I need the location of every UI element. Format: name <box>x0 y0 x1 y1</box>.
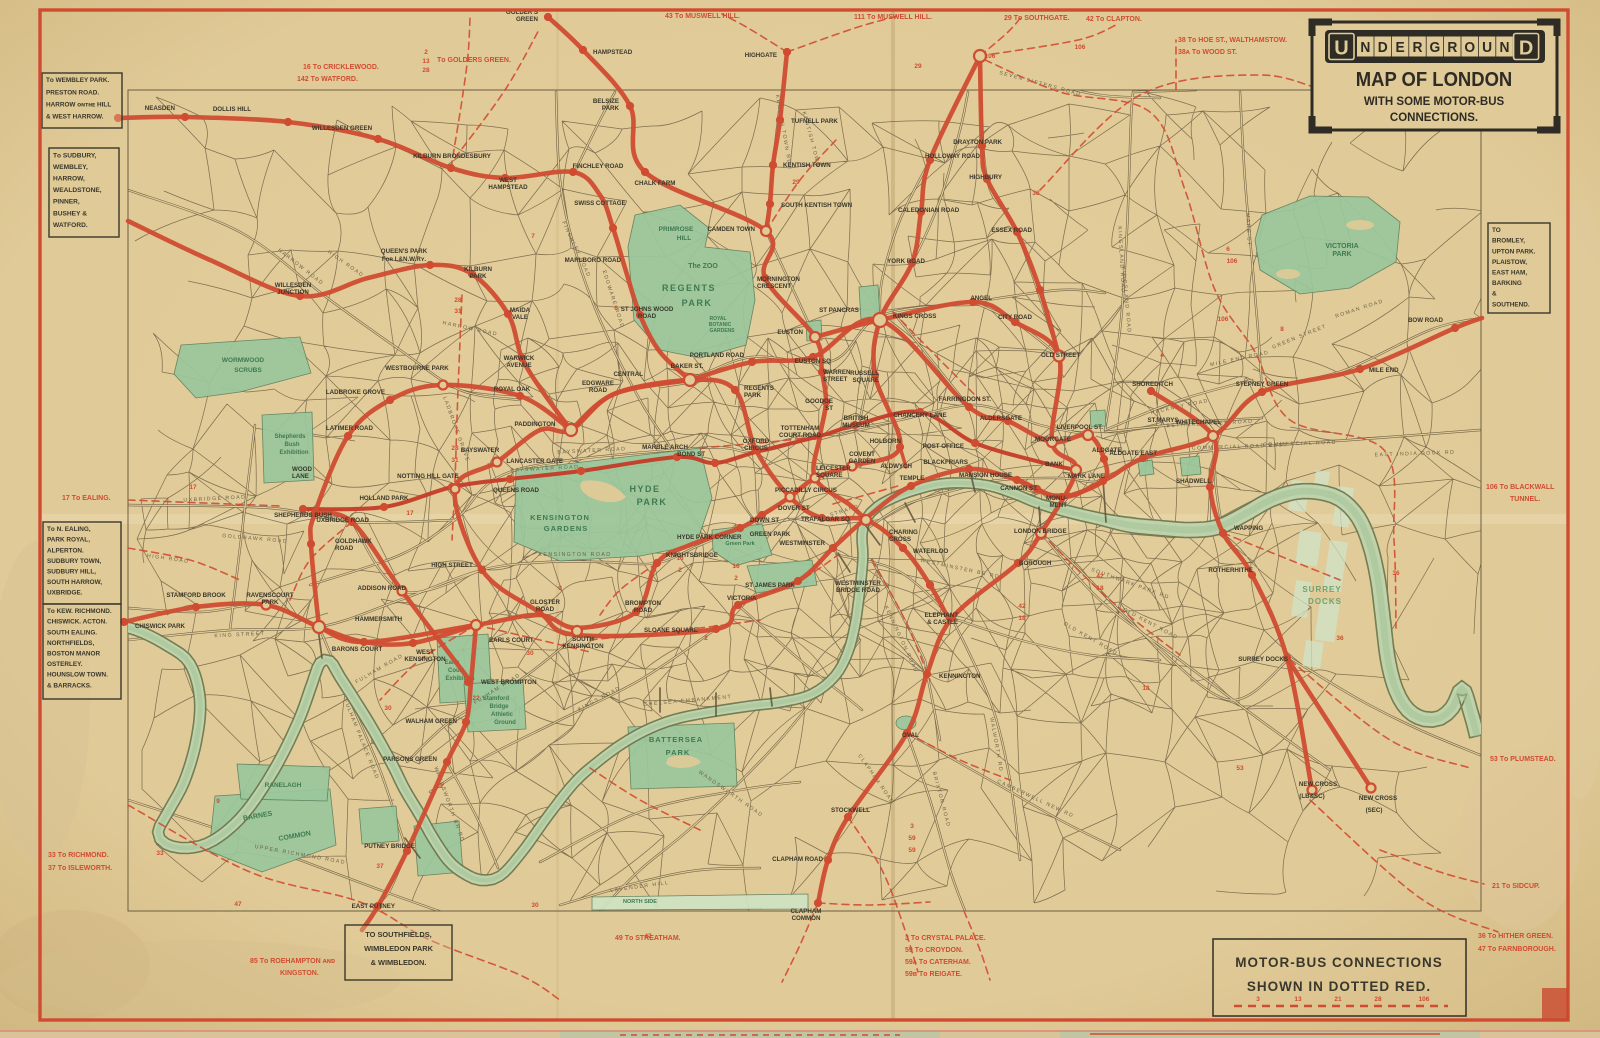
svg-text:106: 106 <box>1075 44 1086 51</box>
svg-text:Green Park: Green Park <box>725 541 755 547</box>
svg-text:BRIDGE ROAD: BRIDGE ROAD <box>836 587 881 594</box>
svg-text:Tᴏ N. EALING,: Tᴏ N. EALING, <box>47 526 91 533</box>
svg-text:WORMWOOD: WORMWOOD <box>222 357 265 364</box>
svg-text:SWISS COTTAGE: SWISS COTTAGE <box>574 200 625 207</box>
svg-text:LIVERPOOL ST.: LIVERPOOL ST. <box>1057 424 1104 431</box>
svg-text:CHALK FARM: CHALK FARM <box>635 180 676 187</box>
svg-text:106 Tᴏ BLACKWALL: 106 Tᴏ BLACKWALL <box>1486 484 1555 491</box>
svg-text:PARK: PARK <box>666 748 691 757</box>
svg-text:TEMPLE: TEMPLE <box>899 475 924 482</box>
svg-text:EAST HAM,: EAST HAM, <box>1492 270 1527 277</box>
svg-text:ST PANCRAS: ST PANCRAS <box>819 307 859 314</box>
svg-text:NORTHFIELDS,: NORTHFIELDS, <box>47 640 94 647</box>
svg-text:28: 28 <box>454 297 462 304</box>
svg-text:BUSHEY &: BUSHEY & <box>53 210 87 217</box>
svg-text:6: 6 <box>1226 246 1230 253</box>
svg-text:29: 29 <box>914 63 922 70</box>
svg-text:DOVER ST: DOVER ST <box>778 505 810 512</box>
svg-text:WEMBLEY,: WEMBLEY, <box>53 164 88 171</box>
svg-text:111 Tᴏ MUSWELL HILL.: 111 Tᴏ MUSWELL HILL. <box>854 14 932 21</box>
svg-text:Tᴏ GOLDERS GREEN.: Tᴏ GOLDERS GREEN. <box>437 57 511 64</box>
svg-text:21: 21 <box>1334 996 1342 1003</box>
svg-text:O: O <box>1464 40 1475 57</box>
svg-text:CROSS: CROSS <box>889 536 911 543</box>
svg-text:WALHAM GREEN: WALHAM GREEN <box>405 718 457 725</box>
svg-text:Tᴏ WEMBLEY PARK.: Tᴏ WEMBLEY PARK. <box>46 77 110 84</box>
svg-text:CIRCUS: CIRCUS <box>744 445 768 452</box>
svg-text:CLAPHAM ROAD: CLAPHAM ROAD <box>772 856 823 863</box>
svg-text:HARROW ᴏɴᴛʜᴇ HILL: HARROW ᴏɴᴛʜᴇ HILL <box>46 102 111 109</box>
svg-text:D: D <box>1519 38 1533 60</box>
svg-text:ROAD: ROAD <box>335 545 354 552</box>
svg-text:KENTISH TOWN: KENTISH TOWN <box>783 162 831 169</box>
svg-text:(LB&SC): (LB&SC) <box>1299 793 1324 800</box>
svg-text:33 Tᴏ RICHMOND.: 33 Tᴏ RICHMOND. <box>48 852 109 859</box>
svg-text:E: E <box>1395 40 1405 57</box>
svg-text:FINCHLEY ROAD: FINCHLEY ROAD <box>573 163 624 170</box>
svg-text:EUSTON: EUSTON <box>777 329 803 336</box>
svg-text:HOUNSLOW TOWN.: HOUNSLOW TOWN. <box>47 672 108 679</box>
svg-text:18: 18 <box>1096 585 1104 592</box>
svg-text:RANELAGH: RANELAGH <box>265 782 302 789</box>
svg-text:42: 42 <box>1096 573 1104 580</box>
svg-text:2: 2 <box>734 575 738 582</box>
svg-text:47: 47 <box>234 901 242 908</box>
svg-text:36 Tᴏ HITHER GREEN.: 36 Tᴏ HITHER GREEN. <box>1478 933 1553 940</box>
svg-text:HARROW,: HARROW, <box>53 175 85 182</box>
svg-text:D: D <box>1378 40 1388 57</box>
svg-text:U: U <box>1334 38 1348 60</box>
svg-text:36: 36 <box>1392 570 1400 577</box>
svg-text:18: 18 <box>1018 615 1026 622</box>
svg-text:OLD STREET: OLD STREET <box>1041 352 1080 359</box>
svg-text:PUTNEY BRIDGE: PUTNEY BRIDGE <box>364 843 415 850</box>
svg-text:UXBRIDGE ROAD: UXBRIDGE ROAD <box>316 517 369 524</box>
svg-text:N: N <box>1500 40 1510 57</box>
svg-text:FARRINGDON ST.: FARRINGDON ST. <box>939 396 992 403</box>
svg-text:ESSEX ROAD: ESSEX ROAD <box>991 227 1032 234</box>
svg-text:KNIGHTSBRIDGE: KNIGHTSBRIDGE <box>666 552 718 559</box>
svg-text:CENTRAL: CENTRAL <box>613 371 643 378</box>
svg-text:UXBRIDGE.: UXBRIDGE. <box>47 590 83 597</box>
svg-text:MARK LANE: MARK LANE <box>1068 473 1105 480</box>
svg-text:33: 33 <box>156 850 164 857</box>
svg-text:AVENUE: AVENUE <box>506 362 531 369</box>
svg-text:QUEENS ROAD: QUEENS ROAD <box>493 487 540 494</box>
svg-text:TO SOUTHFIELDS,: TO SOUTHFIELDS, <box>365 930 431 939</box>
svg-text:ROAD: ROAD <box>536 606 555 613</box>
svg-text:MANSION HOUSE: MANSION HOUSE <box>959 472 1012 479</box>
svg-text:Bridge: Bridge <box>489 704 509 710</box>
svg-text:DOWN ST: DOWN ST <box>750 517 779 524</box>
svg-text:VICTORIA: VICTORIA <box>1325 243 1358 250</box>
svg-text:16 Tᴏ CRICKLEWOOD.: 16 Tᴏ CRICKLEWOOD. <box>303 64 379 71</box>
svg-text:TRAFALGAR SQ: TRAFALGAR SQ <box>801 516 850 523</box>
svg-text:HOLBORN: HOLBORN <box>870 438 902 445</box>
svg-text:31: 31 <box>454 308 462 315</box>
svg-text:59ᴀ Tᴏ CATERHAM.: 59ᴀ Tᴏ CATERHAM. <box>905 959 971 966</box>
svg-text:37: 37 <box>376 863 384 870</box>
svg-text:Athletic: Athletic <box>491 712 514 718</box>
svg-text:COURT ROAD: COURT ROAD <box>779 432 821 439</box>
svg-text:HIGHGATE: HIGHGATE <box>745 52 777 59</box>
svg-text:GARDENS: GARDENS <box>709 328 735 334</box>
svg-text:HAMPSTEAD: HAMPSTEAD <box>488 184 528 191</box>
svg-text:SOUTH KENTISH TOWN: SOUTH KENTISH TOWN <box>781 202 853 209</box>
svg-text:KENSINGTON: KENSINGTON <box>562 643 604 650</box>
svg-text:59 Tᴏ CROYDON.: 59 Tᴏ CROYDON. <box>905 947 963 954</box>
svg-text:13: 13 <box>422 58 430 65</box>
svg-text:WITH SOME MOTOR-BUS: WITH SOME MOTOR-BUS <box>1364 96 1505 108</box>
svg-text:NEW CROSS: NEW CROSS <box>1299 781 1337 788</box>
svg-text:KENSINGTON ROAD: KENSINGTON ROAD <box>538 552 611 558</box>
svg-text:ROTHERHITHE: ROTHERHITHE <box>1208 567 1253 574</box>
svg-text:Ground: Ground <box>494 720 516 726</box>
svg-text:38ᴀ Tᴏ WOOD ST.: 38ᴀ Tᴏ WOOD ST. <box>1178 49 1237 56</box>
svg-text:Bush: Bush <box>285 442 300 448</box>
svg-text:WEALDSTONE,: WEALDSTONE, <box>53 187 102 194</box>
svg-text:& WEST HARROW.: & WEST HARROW. <box>46 114 104 121</box>
svg-text:LONDON BRIDGE: LONDON BRIDGE <box>1014 528 1067 535</box>
svg-text:SHOREDITCH: SHOREDITCH <box>1132 381 1173 388</box>
svg-text:& BARRACKS.: & BARRACKS. <box>47 682 92 689</box>
svg-text:SOUTH HARROW,: SOUTH HARROW, <box>47 579 102 586</box>
svg-text:BATTERSEA: BATTERSEA <box>649 735 703 744</box>
svg-text:SQUARE: SQUARE <box>816 472 842 479</box>
svg-text:DOCKS: DOCKS <box>1308 597 1342 606</box>
svg-text:CAMDEN TOWN: CAMDEN TOWN <box>707 226 755 233</box>
svg-text:SUDBURY TOWN,: SUDBURY TOWN, <box>47 558 101 565</box>
svg-text:LATIMER ROAD: LATIMER ROAD <box>326 425 374 432</box>
svg-text:PARK: PARK <box>682 298 713 308</box>
svg-text:Tᴏ KEW. RICHMOND.: Tᴏ KEW. RICHMOND. <box>47 608 112 615</box>
svg-text:PICCADILLY CIRCUS: PICCADILLY CIRCUS <box>775 487 837 494</box>
svg-text:CONNECTIONS.: CONNECTIONS. <box>1390 112 1478 124</box>
svg-text:HILL: HILL <box>677 235 691 242</box>
svg-text:BLACKFRIARS: BLACKFRIARS <box>923 459 968 466</box>
svg-text:53: 53 <box>1236 765 1244 772</box>
svg-text:STOCKWELL: STOCKWELL <box>831 807 870 814</box>
svg-text:BARKING: BARKING <box>1492 280 1522 287</box>
svg-text:SOUTH EALING.: SOUTH EALING. <box>47 629 97 636</box>
svg-text:HYDE PARK CORNER: HYDE PARK CORNER <box>677 534 742 541</box>
svg-text:The ZOO: The ZOO <box>688 263 718 270</box>
svg-text:OVAL: OVAL <box>902 732 919 739</box>
svg-text:13: 13 <box>1294 996 1302 1003</box>
svg-text:ALDERSGATE: ALDERSGATE <box>980 415 1022 422</box>
svg-text:38 Tᴏ HOE ST., WALTHAMSTOW.: 38 Tᴏ HOE ST., WALTHAMSTOW. <box>1178 37 1287 44</box>
svg-text:30: 30 <box>384 705 392 712</box>
svg-text:LANE: LANE <box>292 473 309 480</box>
svg-text:WHITECHAPEL: WHITECHAPEL <box>1176 419 1222 426</box>
svg-text:MUSEUM: MUSEUM <box>842 422 870 429</box>
svg-text:POST OFFICE: POST OFFICE <box>923 443 964 450</box>
svg-text:STAMFORD BROOK: STAMFORD BROOK <box>166 592 226 599</box>
svg-text:SUDBURY HILL,: SUDBURY HILL, <box>47 569 96 576</box>
svg-text:BANK: BANK <box>1045 461 1063 468</box>
svg-text:NEW CROSS: NEW CROSS <box>1359 795 1397 802</box>
svg-text:CRESCENT: CRESCENT <box>757 283 791 290</box>
svg-text:CANNON ST.: CANNON ST. <box>1000 485 1038 492</box>
svg-text:TO: TO <box>1492 227 1501 234</box>
svg-text:DOLLIS HILL: DOLLIS HILL <box>213 106 251 113</box>
svg-text:BOND ST: BOND ST <box>677 451 705 458</box>
svg-text:ROYAL OAK: ROYAL OAK <box>494 386 531 393</box>
svg-text:R: R <box>1447 40 1458 57</box>
svg-text:31: 31 <box>451 457 459 464</box>
svg-text:KILBURN BRONDESBURY: KILBURN BRONDESBURY <box>413 153 492 160</box>
svg-text:ALDWYCH: ALDWYCH <box>880 463 912 470</box>
svg-text:6: 6 <box>614 305 618 312</box>
svg-text:MARLBORO ROAD: MARLBORO ROAD <box>565 257 622 264</box>
svg-text:G: G <box>1430 40 1441 57</box>
svg-text:MILE END: MILE END <box>1369 367 1399 374</box>
svg-text:PARK: PARK <box>602 105 620 112</box>
svg-text:CITY ROAD: CITY ROAD <box>998 314 1032 321</box>
svg-text:WILLESDEN GREEN: WILLESDEN GREEN <box>312 125 373 132</box>
svg-text:ROAD: ROAD <box>589 387 608 394</box>
svg-text:BOW ROAD: BOW ROAD <box>1408 317 1444 324</box>
svg-text:PARK: PARK <box>1332 251 1351 258</box>
svg-text:106: 106 <box>1227 258 1238 265</box>
svg-text:ALPERTON.: ALPERTON. <box>47 547 84 554</box>
svg-text:MARBLE ARCH: MARBLE ARCH <box>642 444 688 451</box>
svg-text:N: N <box>1360 40 1370 57</box>
svg-text:HIGHBURY: HIGHBURY <box>969 174 1003 181</box>
svg-text:WIMBLEDON PARK: WIMBLEDON PARK <box>364 944 433 953</box>
svg-text:REGENTS: REGENTS <box>662 283 716 293</box>
svg-text:8: 8 <box>1280 326 1284 333</box>
svg-text:WEST BROMPTON: WEST BROMPTON <box>481 679 537 686</box>
svg-text:2: 2 <box>704 635 708 642</box>
svg-text:PARK: PARK <box>744 392 762 399</box>
svg-text:37 Tᴏ ISLEWORTH.: 37 Tᴏ ISLEWORTH. <box>48 865 112 872</box>
svg-text:59: 59 <box>908 847 916 854</box>
svg-text:NOTTING HILL GATE: NOTTING HILL GATE <box>397 473 459 480</box>
svg-text:28: 28 <box>1374 996 1382 1003</box>
svg-text:COMMON: COMMON <box>792 915 821 922</box>
svg-text:CALEDONIAN ROAD: CALEDONIAN ROAD <box>898 207 960 214</box>
svg-text:HOLLOWAY ROAD: HOLLOWAY ROAD <box>925 153 981 160</box>
svg-text:17: 17 <box>189 484 197 491</box>
svg-text:7: 7 <box>531 233 535 240</box>
svg-text:38: 38 <box>1032 190 1040 197</box>
svg-text:ST JAMES PARK: ST JAMES PARK <box>745 582 795 589</box>
svg-text:142 Tᴏ WATFORD.: 142 Tᴏ WATFORD. <box>297 76 358 83</box>
svg-text:BOSTON MANOR: BOSTON MANOR <box>47 651 101 658</box>
svg-text:ALDGATE EAST: ALDGATE EAST <box>1109 450 1157 457</box>
svg-text:KENSINGTON: KENSINGTON <box>404 656 446 663</box>
svg-text:16: 16 <box>732 563 740 570</box>
svg-text:KINGSTON.: KINGSTON. <box>280 970 319 977</box>
svg-text:WESTMINSTER: WESTMINSTER <box>779 540 825 547</box>
svg-text:18: 18 <box>1142 685 1150 692</box>
svg-text:SCRUBS: SCRUBS <box>234 367 262 374</box>
svg-text:2: 2 <box>678 567 682 574</box>
svg-text:SHADWELL: SHADWELL <box>1176 478 1211 485</box>
svg-text:EARLS COURT: EARLS COURT <box>489 637 534 644</box>
svg-text:PARK ROYAL,: PARK ROYAL, <box>47 537 90 544</box>
svg-text:21 Tᴏ SIDCUP.: 21 Tᴏ SIDCUP. <box>1492 883 1540 890</box>
svg-text:DRAYTON PARK: DRAYTON PARK <box>953 139 1002 146</box>
svg-text:106: 106 <box>1419 996 1430 1003</box>
svg-text:& WIMBLEDON.: & WIMBLEDON. <box>371 958 427 967</box>
svg-text:ST: ST <box>825 405 833 412</box>
svg-text:CHISWICK PARK: CHISWICK PARK <box>135 623 186 630</box>
svg-text:30: 30 <box>526 650 534 657</box>
svg-text:59ʙ Tᴏ REIGATE.: 59ʙ Tᴏ REIGATE. <box>905 971 962 978</box>
svg-text:WAPPING: WAPPING <box>1234 525 1263 532</box>
svg-text:JUNCTION: JUNCTION <box>277 289 309 296</box>
svg-text:GARDENS: GARDENS <box>544 524 589 533</box>
svg-text:HIGH STREET: HIGH STREET <box>431 562 473 569</box>
svg-text:28: 28 <box>451 445 459 452</box>
svg-text:106: 106 <box>1218 316 1229 323</box>
svg-text:3 Tᴏ CRYSTAL PALACE.: 3 Tᴏ CRYSTAL PALACE. <box>905 935 986 942</box>
svg-text:42: 42 <box>1018 603 1026 610</box>
svg-text:GREEN: GREEN <box>516 16 539 23</box>
svg-text:PRIMROSE: PRIMROSE <box>659 226 694 233</box>
svg-text:Exhibition: Exhibition <box>280 450 309 456</box>
svg-text:QUEEN'S PARK: QUEEN'S PARK <box>381 248 428 255</box>
svg-text:R: R <box>1413 40 1424 57</box>
svg-text:PARK: PARK <box>261 599 279 606</box>
svg-text:47 Tᴏ FARNBOROUGH.: 47 Tᴏ FARNBOROUGH. <box>1478 946 1556 953</box>
svg-text:CHANCERY LANE: CHANCERY LANE <box>893 412 946 419</box>
svg-text:KENSINGTON: KENSINGTON <box>530 513 590 522</box>
svg-text:HOLLAND PARK: HOLLAND PARK <box>359 495 409 502</box>
svg-text:PRESTON ROAD.: PRESTON ROAD. <box>46 89 99 96</box>
svg-text:ST.MARYS: ST.MARYS <box>1147 417 1178 424</box>
svg-text:PLAISTOW,: PLAISTOW, <box>1492 259 1527 266</box>
svg-text:YORK ROAD: YORK ROAD <box>887 258 925 265</box>
svg-text:SHOWN IN DOTTED RED.: SHOWN IN DOTTED RED. <box>1247 979 1431 994</box>
svg-text:BAKER ST.: BAKER ST. <box>671 363 704 370</box>
svg-text:SQUARE: SQUARE <box>853 377 879 384</box>
svg-text:MOORGATE: MOORGATE <box>1035 436 1071 443</box>
svg-text:17 Tᴏ EALING.: 17 Tᴏ EALING. <box>62 495 111 502</box>
svg-text:VALE: VALE <box>512 314 528 321</box>
svg-text:CHISWICK. ACTON.: CHISWICK. ACTON. <box>47 619 107 626</box>
svg-text:4: 4 <box>1160 352 1164 359</box>
svg-text:NEASDEN: NEASDEN <box>145 105 176 112</box>
svg-text:BOROUGH: BOROUGH <box>1019 560 1052 567</box>
svg-text:17: 17 <box>406 510 414 517</box>
svg-text:3: 3 <box>1256 996 1260 1003</box>
svg-text:&: & <box>1492 291 1497 298</box>
svg-text:53 Tᴏ PLUMSTEAD.: 53 Tᴏ PLUMSTEAD. <box>1490 756 1556 763</box>
svg-text:PARSONS GREEN: PARSONS GREEN <box>383 756 437 763</box>
svg-text:EUSTON SQ: EUSTON SQ <box>795 358 832 365</box>
svg-text:MAP OF LONDON: MAP OF LONDON <box>1356 68 1512 91</box>
svg-text:9: 9 <box>558 585 562 592</box>
svg-text:22: 22 <box>472 695 480 702</box>
svg-text:Shepherds: Shepherds <box>274 434 306 440</box>
svg-text:59: 59 <box>908 835 916 842</box>
svg-text:NORTH SIDE: NORTH SIDE <box>623 899 657 905</box>
svg-text:36: 36 <box>1336 635 1344 642</box>
svg-text:BARONS COURT: BARONS COURT <box>332 646 383 653</box>
svg-text:29: 29 <box>792 179 800 186</box>
svg-text:HYDE: HYDE <box>629 484 660 494</box>
svg-text:SURREY DOCKS: SURREY DOCKS <box>1238 656 1288 663</box>
svg-text:TUFNELL PARK: TUFNELL PARK <box>791 118 838 125</box>
svg-text:42 Tᴏ CLAPTON.: 42 Tᴏ CLAPTON. <box>1086 16 1142 23</box>
svg-text:9: 9 <box>216 798 220 805</box>
svg-text:KINGS CROSS: KINGS CROSS <box>893 313 936 320</box>
svg-text:WESTBOURNE PARK: WESTBOURNE PARK <box>385 365 449 372</box>
svg-text:OSTERLEY.: OSTERLEY. <box>47 661 83 668</box>
svg-text:Tᴏ SUDBURY,: Tᴏ SUDBURY, <box>53 152 97 159</box>
svg-text:HAMMERSMITH: HAMMERSMITH <box>355 616 403 623</box>
svg-text:TUNNEL.: TUNNEL. <box>1510 496 1540 503</box>
svg-text:PARK: PARK <box>469 273 487 280</box>
svg-text:(SEC): (SEC) <box>1366 807 1383 814</box>
svg-text:PORTLAND ROAD: PORTLAND ROAD <box>690 352 745 359</box>
svg-text:KENNINGTON: KENNINGTON <box>939 673 981 680</box>
svg-text:VICTORIA: VICTORIA <box>727 595 757 602</box>
svg-text:SLOANE SQUARE: SLOANE SQUARE <box>644 627 698 634</box>
svg-text:MOTOR-BUS CONNECTIONS: MOTOR-BUS CONNECTIONS <box>1235 955 1443 970</box>
svg-text:UPTON PARK.: UPTON PARK. <box>1492 248 1536 255</box>
svg-text:WATERLOO: WATERLOO <box>913 548 948 555</box>
svg-text:43 Tᴏ MUSWELL HILL.: 43 Tᴏ MUSWELL HILL. <box>665 13 740 20</box>
svg-text:29 Tᴏ SOUTHGATE.: 29 Tᴏ SOUTHGATE. <box>1004 15 1070 22</box>
svg-text:85 Tᴏ ROEHAMPTON ᴀɴᴅ: 85 Tᴏ ROEHAMPTON ᴀɴᴅ <box>250 958 335 965</box>
svg-text:EAST PUTNEY: EAST PUTNEY <box>352 903 396 910</box>
svg-text:WATFORD.: WATFORD. <box>53 222 88 229</box>
svg-text:BROMLEY,: BROMLEY, <box>1492 238 1525 245</box>
svg-text:ADDISON ROAD: ADDISON ROAD <box>358 585 407 592</box>
svg-text:28: 28 <box>422 67 430 74</box>
svg-text:MENT: MENT <box>1049 502 1067 509</box>
svg-text:PARK: PARK <box>637 497 668 507</box>
svg-text:& CASTLE: & CASTLE <box>927 619 958 626</box>
svg-text:GARDEN: GARDEN <box>849 458 876 465</box>
svg-text:GREEN PARK: GREEN PARK <box>750 531 791 538</box>
svg-text:HAMPSTEAD: HAMPSTEAD <box>593 49 633 56</box>
svg-text:3: 3 <box>910 823 914 830</box>
svg-text:2: 2 <box>424 49 428 56</box>
svg-text:ANGEL: ANGEL <box>970 295 992 302</box>
svg-text:BAYSWATER: BAYSWATER <box>461 447 500 454</box>
svg-text:ROAD: ROAD <box>634 607 653 614</box>
svg-text:49 Tᴏ STREATHAM.: 49 Tᴏ STREATHAM. <box>615 935 681 942</box>
svg-text:STREET: STREET <box>823 376 848 383</box>
svg-text:SURREY: SURREY <box>1302 585 1341 594</box>
svg-text:LADBROKE GROVE: LADBROKE GROVE <box>326 389 385 396</box>
svg-text:PINNER,: PINNER, <box>53 199 80 206</box>
svg-text:30: 30 <box>531 902 539 909</box>
svg-text:STEPNEY GREEN: STEPNEY GREEN <box>1236 381 1289 388</box>
svg-text:Fᴏʀ L&N.W.Rʏ.: Fᴏʀ L&N.W.Rʏ. <box>382 256 427 263</box>
svg-text:PADDINGTON: PADDINGTON <box>514 421 556 428</box>
svg-text:ROAD: ROAD <box>638 313 657 320</box>
svg-text:U: U <box>1482 40 1492 57</box>
svg-text:SOUTHEND.: SOUTHEND. <box>1492 301 1530 308</box>
svg-text:LANCASTER GATE: LANCASTER GATE <box>506 458 563 465</box>
